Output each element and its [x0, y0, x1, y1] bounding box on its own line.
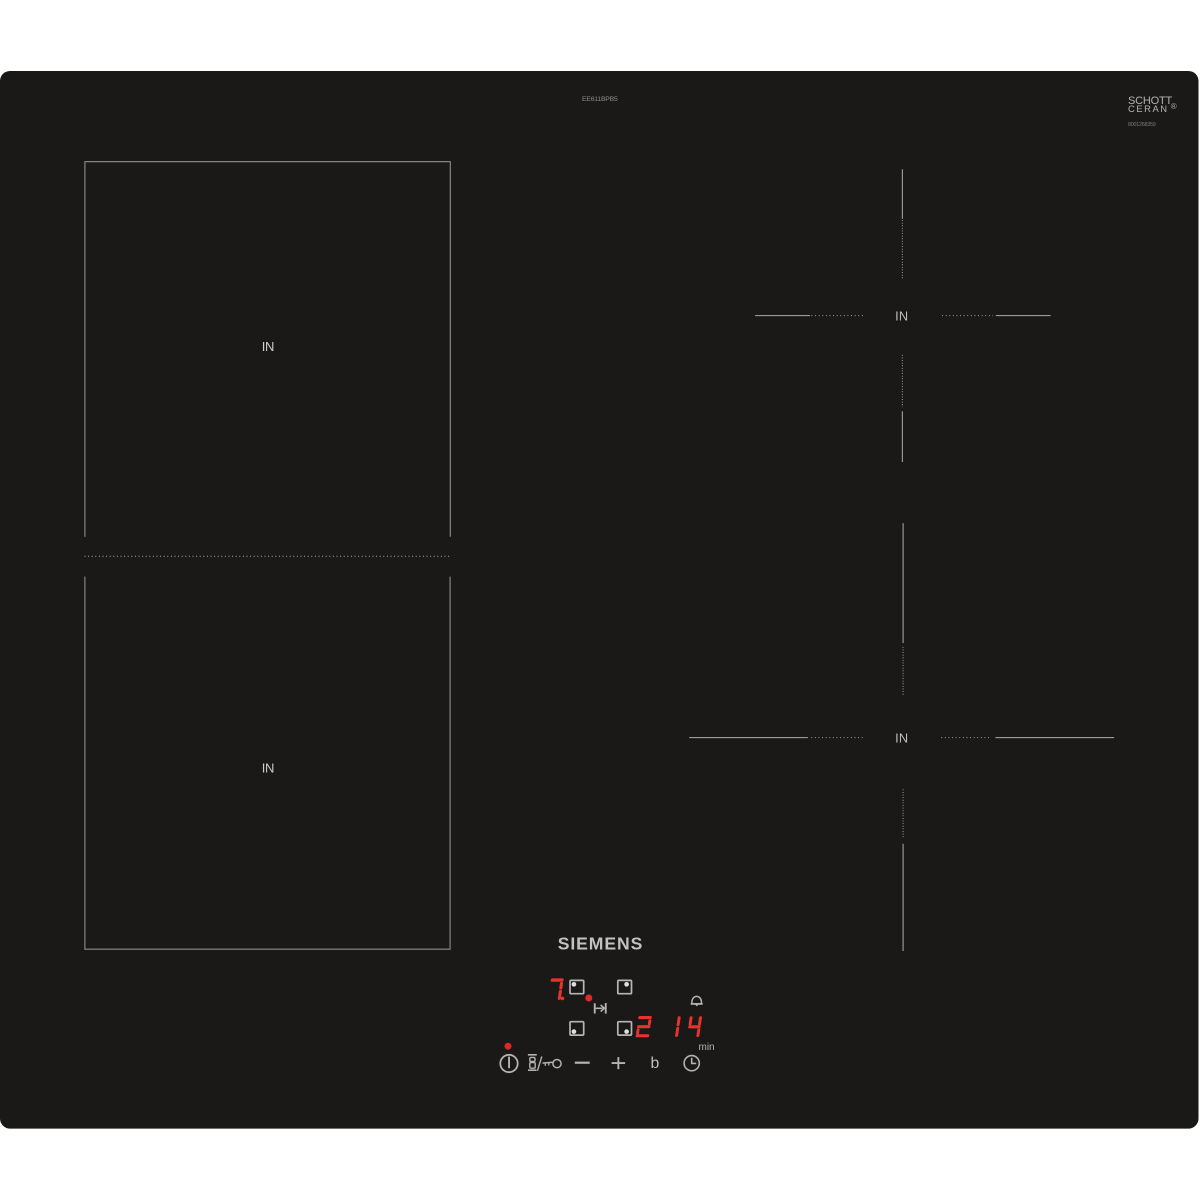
- svg-text:8001268359: 8001268359: [1128, 122, 1156, 128]
- svg-text:min: min: [699, 1042, 715, 1053]
- svg-text:EE611BPB5: EE611BPB5: [582, 96, 618, 103]
- svg-text:CERAN: CERAN: [1128, 103, 1169, 114]
- svg-text:b: b: [651, 1055, 660, 1072]
- svg-text:®: ®: [1171, 102, 1177, 111]
- svg-text:IN: IN: [895, 308, 908, 323]
- svg-text:IN: IN: [262, 761, 274, 776]
- svg-text:SIEMENS: SIEMENS: [558, 934, 644, 954]
- svg-text:IN: IN: [895, 730, 908, 745]
- svg-text:IN: IN: [262, 339, 274, 354]
